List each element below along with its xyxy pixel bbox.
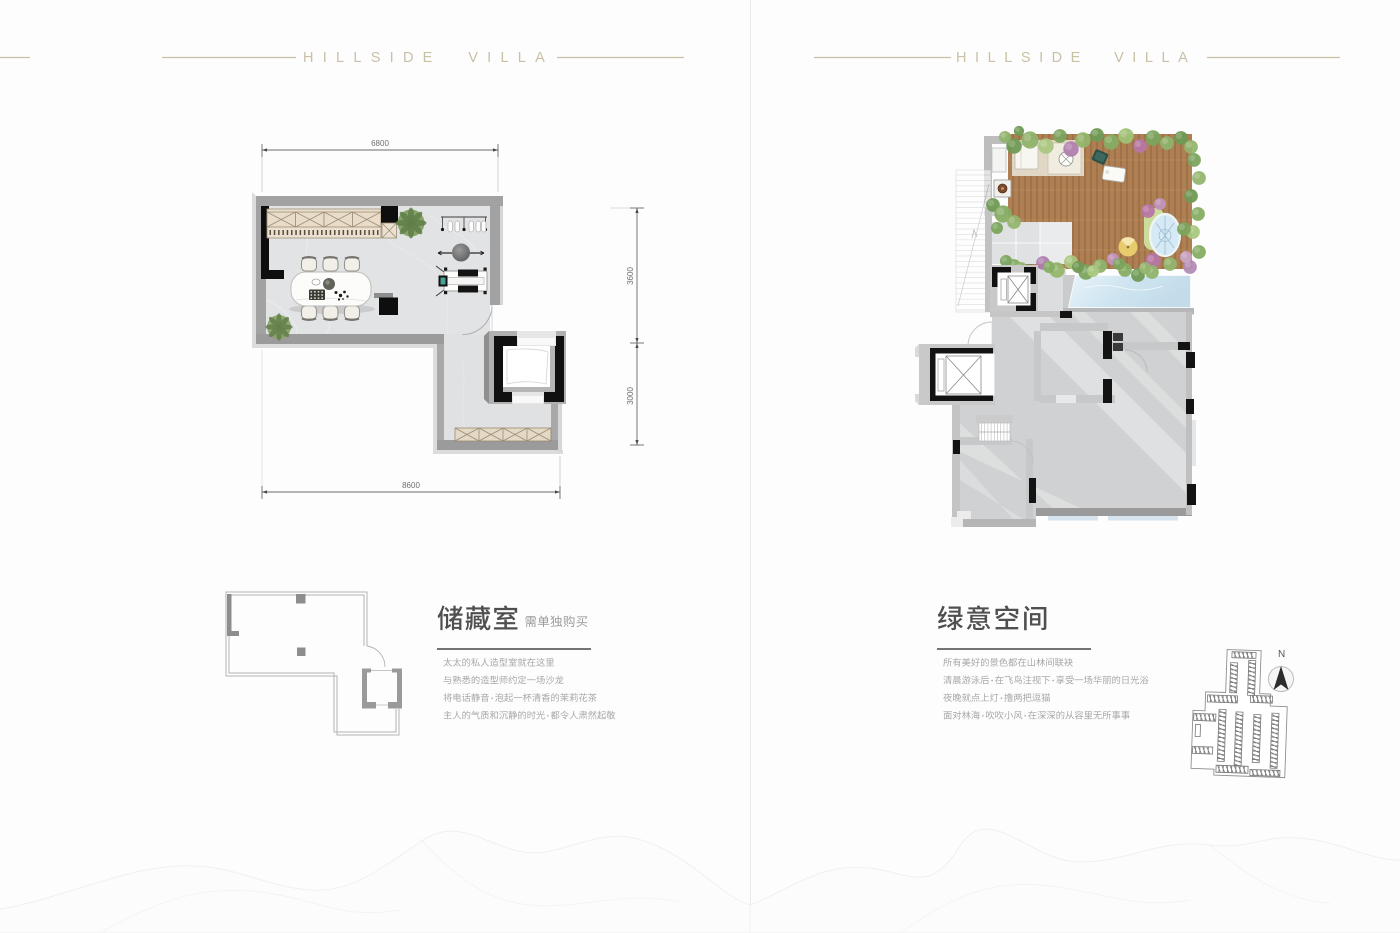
svg-text:3000: 3000 — [626, 387, 635, 405]
svg-text:3600: 3600 — [626, 267, 635, 285]
svg-text:HILLSIDE VILLA: HILLSIDE VILLA — [303, 50, 551, 66]
svg-text:HILLSIDE VILLA: HILLSIDE VILLA — [956, 50, 1194, 66]
svg-text:8600: 8600 — [402, 481, 420, 490]
svg-text:6800: 6800 — [371, 139, 389, 148]
svg-text:N: N — [1278, 649, 1285, 660]
